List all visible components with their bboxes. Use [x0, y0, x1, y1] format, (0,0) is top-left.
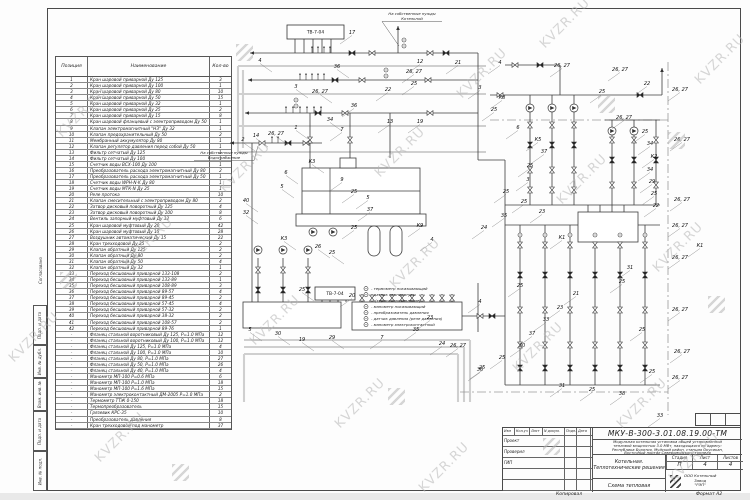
spec-cell: 1: [56, 77, 88, 82]
spec-cell: 37: [56, 295, 88, 300]
spec-cell: 1: [210, 119, 231, 124]
spec-cell: Переход бесшовный приварной 57-32: [88, 307, 210, 312]
stamp-cell: Взам. инв. №: [33, 378, 47, 411]
spec-cell: Кран шаровой муфтовый Ду 15: [88, 229, 210, 234]
spec-cell: Мембранный аккумулятор Ду 80: [88, 138, 210, 143]
spec-cell: 2: [210, 295, 231, 300]
spec-cell: Кран шаровой приварной Ду 15: [88, 113, 210, 118]
spec-cell: Термометр ТТЖ 0-150: [88, 398, 210, 403]
spec-cell: 1: [210, 83, 231, 88]
spec-cell: 1: [210, 101, 231, 106]
spec-cell: Клапан предохранительный Ду 50: [88, 132, 210, 137]
spec-cell: 4: [210, 344, 231, 349]
spec-cell: 1: [210, 144, 231, 149]
spec-cell: Кран трехходовой Ду 25: [88, 241, 210, 246]
spec-cell: Фланец стальной Ду 100, Р=1.0 МПа: [88, 350, 210, 355]
spec-cell: Фланец стальной Ду 50, Р=1.0 МПа: [88, 362, 210, 367]
spec-cell: 8: [210, 113, 231, 118]
spec-cell: -: [56, 368, 88, 373]
spec-cell: 20: [56, 192, 88, 197]
spec-cell: Переход бесшовный приварной 89-76: [88, 326, 210, 331]
spec-cell: Клапан обратный Ду 32: [88, 265, 210, 270]
spec-cell: Фильтр сетчатый Ду 100: [88, 156, 210, 161]
drawing-name: Схема тепловая: [592, 478, 665, 492]
spec-cell: -: [56, 350, 88, 355]
approval-stamp: Согласовано: [33, 238, 47, 302]
spec-cell: 10: [210, 410, 231, 415]
spec-cell: 1: [210, 186, 231, 191]
spec-table-header: Позиция Наименование Кол-во: [56, 57, 231, 77]
spec-cell: 8: [210, 210, 231, 215]
stamp-cell: Инв. № дубл.: [33, 345, 47, 378]
spec-cell: -: [56, 417, 88, 422]
spec-cell: Манометр МП-100 Р=0.6 МПа: [88, 374, 210, 379]
spec-cell: 2: [210, 271, 231, 276]
spec-cell: Манометр МП-100 Р=1.0 МПа: [88, 380, 210, 385]
spec-cell: 3: [210, 77, 231, 82]
spec-cell: 1: [210, 174, 231, 179]
spec-cell: Счетчик воды МТК-N Ду 25: [88, 186, 210, 191]
stamp-cell: Подп. и дата: [33, 411, 47, 451]
spec-cell: 38: [56, 301, 88, 306]
spec-cell: 39: [56, 307, 88, 312]
spec-cell: 34: [56, 277, 88, 282]
spec-cell: 19: [56, 186, 88, 191]
spec-cell: Термопреобразователь: [88, 404, 210, 409]
spec-cell: Фланец стальной Ду 40, Р=1.0 МПа: [88, 368, 210, 373]
spec-cell: Кран шаровой приварной Ду 50: [88, 95, 210, 100]
spec-cell: 26: [210, 362, 231, 367]
spec-cell: 18: [210, 380, 231, 385]
spec-cell: Переход бесшовный приварной 108-57: [88, 320, 210, 325]
spec-header-position: Позиция: [56, 57, 88, 76]
spec-cell: 1: [210, 265, 231, 270]
spec-cell: 42: [56, 326, 88, 331]
spec-cell: 37: [210, 423, 231, 428]
spec-cell: -: [56, 374, 88, 379]
spec-cell: 12: [56, 144, 88, 149]
spec-cell: Фланец стальной воротниковый Ду 100, Р=1…: [88, 338, 210, 343]
spec-cell: Манометр электроконтактный ДМ-2005 Р=1.0…: [88, 392, 210, 397]
spec-cell: Кран шаровой приварной Ду 80: [88, 89, 210, 94]
stamp-cell: Инв. № подл.: [33, 451, 47, 491]
spec-cell: 1: [210, 162, 231, 167]
spec-cell: 4: [210, 289, 231, 294]
spec-cell: 7: [56, 113, 88, 118]
spec-cell: 9: [56, 126, 88, 131]
spec-cell: 14: [56, 156, 88, 161]
spec-cell: Фланец стальной Ду 80, Р=1.0 МПа: [88, 356, 210, 361]
spec-cell: -: [56, 332, 88, 337]
spec-cell: 2: [210, 168, 231, 173]
stamp-cell: Подп. и дата: [33, 305, 47, 345]
spec-cell: 6: [210, 216, 231, 221]
spec-cell: 12: [210, 332, 231, 337]
spec-cell: 35: [56, 283, 88, 288]
spec-cell: Манометр МП-100 Р=1.6 МПа: [88, 386, 210, 391]
spec-cell: 6: [210, 374, 231, 379]
spec-cell: Клапан электромагнитный "НЗ" Ду 32: [88, 126, 210, 131]
spec-cell: 29: [56, 247, 88, 252]
spec-cell: Переход бесшовный приварной 38-32: [88, 313, 210, 318]
spec-cell: 15: [210, 95, 231, 100]
spec-cell: 6: [56, 107, 88, 112]
spec-cell: 30: [56, 253, 88, 258]
spec-cell: 8: [56, 119, 88, 124]
company-name: ООО КотельныйЗавод"РЭП": [684, 474, 716, 487]
spec-cell: 2: [210, 107, 231, 112]
format-label: Формат А2: [696, 492, 722, 497]
spec-cell: -: [56, 398, 88, 403]
spec-cell: 10: [210, 192, 231, 197]
spec-cell: 15: [210, 404, 231, 409]
spec-cell: 32: [56, 265, 88, 270]
spec-cell: Переход бесшовный приварной 108-89: [88, 283, 210, 288]
spec-cell: Затвор дисковый поворотный Ду 100: [88, 210, 210, 215]
spec-cell: Кран трехходовой под манометр: [88, 423, 210, 428]
spec-cell: 15: [210, 386, 231, 391]
spec-cell: 4: [210, 368, 231, 373]
spec-cell: Переход бесшовный приварной 133-108: [88, 271, 210, 276]
spec-cell: 33: [56, 271, 88, 276]
spec-cell: 10: [210, 350, 231, 355]
spec-cell: 10: [56, 132, 88, 137]
spec-cell: 21: [56, 198, 88, 203]
spec-cell: 2: [210, 198, 231, 203]
spec-cell: 36: [56, 289, 88, 294]
spec-cell: Вентиль запорный муфтовый Ду 32: [88, 216, 210, 221]
company-logo: [670, 475, 681, 488]
spec-cell: 31: [56, 259, 88, 264]
spec-cell: -: [56, 423, 88, 428]
spec-cell: -: [56, 356, 88, 361]
spec-cell: 22: [210, 235, 231, 240]
spec-cell: Клапан обратный Ду 80: [88, 253, 210, 258]
spec-cell: 5: [56, 101, 88, 106]
spec-cell: 1: [210, 126, 231, 131]
spec-cell: Переход бесшовный приварной 89-57: [88, 289, 210, 294]
spec-cell: Кран шаровой приварной Ду 100: [88, 83, 210, 88]
spec-cell: 17: [56, 174, 88, 179]
title-block: ИзмКол.учЛистN докум.Подп.ДатаПроектПров…: [502, 427, 741, 491]
spec-cell: 27: [210, 356, 231, 361]
spec-table-body: 1Кран шаровой приварной Ду 12532Кран шар…: [56, 77, 231, 429]
spec-cell: 1: [210, 326, 231, 331]
spec-cell: Кран шаровой приварной Ду 25: [88, 107, 210, 112]
spec-cell: Кран шаровой приварной Ду 125: [88, 77, 210, 82]
spec-cell: 27: [56, 235, 88, 240]
spec-cell: Фланец стальной воротниковый Ду 125, Р=1…: [88, 332, 210, 337]
spec-cell: Затвор дисковый поворотный Ду 125: [88, 204, 210, 209]
spec-cell: 1: [210, 150, 231, 155]
spec-cell: 12: [210, 338, 231, 343]
spec-cell: Переход бесшовный приварной 89-45: [88, 295, 210, 300]
spec-cell: Фланец стальной Ду 125, Р=1.0 МПа: [88, 344, 210, 349]
spec-cell: 2: [210, 253, 231, 258]
spec-cell: 40: [56, 313, 88, 318]
spec-cell: 18: [210, 398, 231, 403]
spec-cell: 3: [210, 283, 231, 288]
doc-number: МКУ-В-300-3.01.08.19.00-ТМ: [592, 428, 742, 439]
spec-header-name: Наименование: [88, 57, 210, 76]
spec-cell: Клапан регулятор давления перед собой Ду…: [88, 144, 210, 149]
spec-cell: 15: [56, 162, 88, 167]
spec-cell: Кран шаровой фланцевый с электроприводом…: [88, 119, 210, 124]
spec-cell: Грязевик КРС-35: [88, 410, 210, 415]
spec-cell: 8: [210, 417, 231, 422]
spec-cell: 4: [210, 259, 231, 264]
spec-cell: 1: [210, 180, 231, 185]
title-block-signatures: ИзмКол.учЛистN докум.Подп.ДатаПроектПров…: [503, 428, 592, 492]
spec-cell: Воздушник автоматический Ду 15: [88, 235, 210, 240]
spec-cell: Преобразователь расхода электромагнитный…: [88, 174, 210, 179]
company-cell: ООО КотельныйЗавод"РЭП": [665, 469, 742, 492]
spec-cell: 1: [210, 138, 231, 143]
inventory-mini-table: [695, 413, 741, 426]
spec-cell: 2: [210, 313, 231, 318]
spec-cell: 2: [210, 307, 231, 312]
spec-header-qty: Кол-во: [210, 57, 231, 76]
spec-cell: Счетчик воды ВСХ-100 Ду 100: [88, 162, 210, 167]
spec-cell: 41: [56, 320, 88, 325]
page-edge: [0, 493, 750, 500]
spec-cell: -: [56, 380, 88, 385]
spec-cell: 3: [56, 89, 88, 94]
spec-row: -Кран трехходовой под манометр37: [56, 423, 231, 429]
spec-cell: -: [56, 338, 88, 343]
spec-cell: 25: [56, 223, 88, 228]
spec-cell: 28: [210, 229, 231, 234]
spec-cell: 24: [56, 216, 88, 221]
spec-cell: 1: [210, 277, 231, 282]
spec-cell: 2: [56, 83, 88, 88]
spec-cell: 4: [210, 204, 231, 209]
spec-cell: Реле протока: [88, 192, 210, 197]
spec-cell: 11: [56, 138, 88, 143]
spec-cell: Клапан смесительный с электроприводом Ду…: [88, 198, 210, 203]
spec-cell: 18: [56, 180, 88, 185]
spec-cell: Преобразователь расхода электромагнитный…: [88, 168, 210, 173]
spec-cell: 2: [210, 320, 231, 325]
spec-cell: 42: [210, 223, 231, 228]
spec-cell: 2: [210, 247, 231, 252]
spec-cell: -: [56, 410, 88, 415]
spec-cell: 23: [56, 210, 88, 215]
stage-sheet-grid: Стадия Лист Листов П 4 4: [665, 454, 742, 469]
spec-cell: Клапан обратный Ду 125: [88, 247, 210, 252]
spec-cell: Фильтр сетчатый Ду 125: [88, 150, 210, 155]
spec-cell: Счетчик воды WPH-N-K Ду 80: [88, 180, 210, 185]
copied-label: Копировал: [556, 492, 582, 497]
spec-cell: 16: [56, 168, 88, 173]
spec-cell: -: [56, 386, 88, 391]
spec-cell: Клапан обратный Ду 50: [88, 259, 210, 264]
spec-cell: 2: [210, 392, 231, 397]
spec-cell: Переход бесшовный приварной 133-89: [88, 277, 210, 282]
spec-cell: Переход бесшовный приварной 57-45: [88, 301, 210, 306]
spec-cell: Преобразователь давления: [88, 417, 210, 422]
spec-cell: -: [56, 404, 88, 409]
spec-cell: 1: [210, 156, 231, 161]
spec-cell: -: [56, 392, 88, 397]
spec-cell: 4: [210, 301, 231, 306]
spec-cell: Кран шаровой приварной Ду 32: [88, 101, 210, 106]
spec-cell: -: [56, 344, 88, 349]
spec-cell: 4: [56, 95, 88, 100]
object-title: Котельная.Теплотехнические решения: [592, 454, 665, 478]
spec-cell: 22: [56, 204, 88, 209]
spec-cell: -: [56, 362, 88, 367]
spec-cell: Кран шаровой муфтовый Ду 20: [88, 223, 210, 228]
specification-table: Позиция Наименование Кол-во 1Кран шарово…: [55, 56, 232, 430]
spec-cell: 13: [56, 150, 88, 155]
spec-cell: 26: [56, 229, 88, 234]
spec-cell: 28: [56, 241, 88, 246]
spec-cell: 2: [210, 132, 231, 137]
spec-cell: 10: [210, 89, 231, 94]
spec-cell: 2: [210, 241, 231, 246]
doc-description: Модульная котельная установка общей уста…: [592, 439, 742, 454]
